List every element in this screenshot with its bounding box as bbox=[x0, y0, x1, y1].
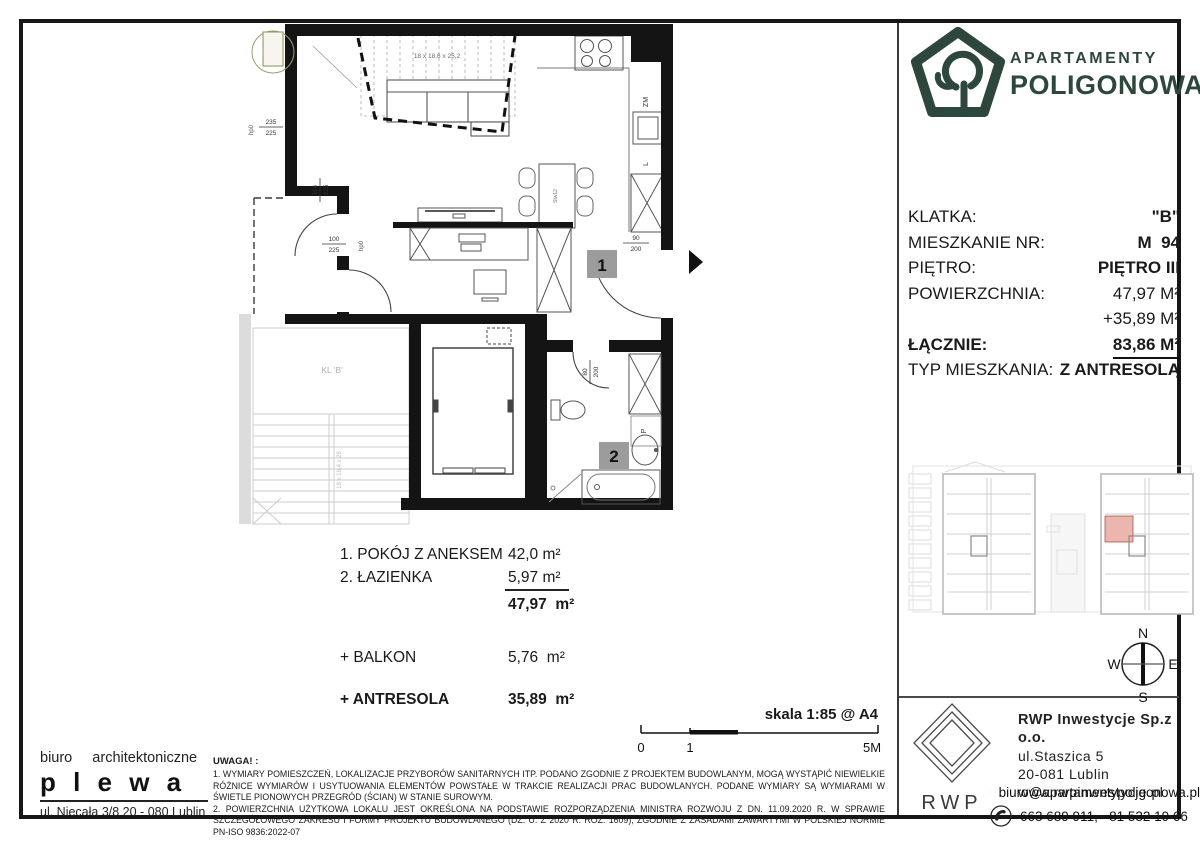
site-building-a bbox=[943, 474, 1035, 614]
floor-plan: KL 'B' 18 x 16,4 x 28 18 x 18,6 x 25,2 bbox=[237, 18, 707, 528]
developer-phones: 663 689 911, 81 532 19 66 bbox=[1020, 809, 1188, 824]
disclaimer: UWAGA! : 1. WYMIARY POMIESZCZEŃ, LOKALIZ… bbox=[213, 756, 885, 838]
site-plan-thumbnail bbox=[905, 460, 1197, 632]
email-row: biuro@apartamentypoligonowa.pl bbox=[990, 781, 1200, 803]
detail-label: ŁĄCZNIE: bbox=[908, 332, 987, 360]
tv-and-island bbox=[393, 208, 573, 312]
site-building-b bbox=[1101, 474, 1193, 614]
room-area: 5,97 m² bbox=[508, 566, 580, 589]
dishwasher-label: ZM bbox=[643, 97, 650, 107]
detail-label: PIĘTRO: bbox=[908, 255, 976, 281]
scale-label: skala 1:85 @ A4 bbox=[620, 706, 878, 723]
table-code-label: Stw12 bbox=[553, 189, 559, 203]
developer-company: RWP Inwestycje Sp.z o.o. bbox=[1018, 711, 1188, 747]
core-staircase bbox=[239, 314, 409, 524]
entrance-arrow-icon bbox=[689, 250, 703, 274]
detail-label: KLATKA: bbox=[908, 204, 977, 230]
core-stair-dimension: 18 x 16,4 x 28 bbox=[337, 450, 343, 488]
room-list-sum-line bbox=[505, 589, 569, 591]
detail-row-powierzchnia: POWIERZCHNIA: 47,97 M² bbox=[908, 281, 1180, 307]
detail-value: 47,97 M² bbox=[1113, 281, 1180, 307]
apartment-details: KLATKA: "B" MIESZKANIE NR: M 94 PIĘTRO: … bbox=[908, 204, 1180, 359]
dim-bath-door: 80 200 bbox=[582, 360, 600, 384]
disclaimer-title: UWAGA! : bbox=[213, 756, 885, 767]
type-value: Z ANTRESOLĄ bbox=[1060, 360, 1180, 380]
room-name: 2. ŁAZIENKA bbox=[340, 566, 508, 589]
site-center-building bbox=[1047, 514, 1085, 612]
rwp-logo-text: RWP bbox=[912, 792, 992, 815]
extra-area: 35,89 m² bbox=[508, 688, 580, 711]
detail-value: +35,89 M² bbox=[1103, 306, 1180, 332]
apartment-type-row: TYP MIESZKANIA: Z ANTRESOLĄ bbox=[908, 360, 1180, 380]
phone-row: 663 689 911, 81 532 19 66 bbox=[990, 805, 1200, 827]
envelope-icon bbox=[990, 781, 991, 803]
type-label: TYP MIESZKANIA: bbox=[908, 360, 1053, 380]
detail-row-klatka: KLATKA: "B" bbox=[908, 204, 1180, 230]
antresola-row: + ANTRESOLA 35,89 m² bbox=[340, 688, 580, 711]
understair-guide-line bbox=[313, 46, 357, 88]
room-area: 42,0 m² bbox=[508, 543, 580, 566]
room-row-2: 2. ŁAZIENKA 5,97 m² bbox=[340, 566, 580, 589]
sofa bbox=[387, 80, 509, 136]
detail-row-lacznie: ŁĄCZNIE: 83,86 M² bbox=[908, 332, 1180, 360]
compass-e: E bbox=[1168, 656, 1177, 672]
detail-label: MIESZKANIE NR: bbox=[908, 230, 1045, 256]
room-list-total: 47,97 m² bbox=[508, 596, 574, 614]
room-list: 1. POKÓJ Z ANEKSEM 42,0 m² 2. ŁAZIENKA 5… bbox=[340, 543, 580, 589]
detail-value: "B" bbox=[1152, 204, 1180, 230]
detail-row-mieszkanie: MIESZKANIE NR: M 94 bbox=[908, 230, 1180, 256]
scale-tick-5m: 5M bbox=[863, 740, 881, 755]
svg-text:100: 100 bbox=[329, 236, 340, 243]
rwp-diamond-logo-icon bbox=[912, 700, 992, 790]
architect-line1: biuro architektoniczne bbox=[40, 750, 212, 766]
dim-balcony-door-2: 100 225 bbox=[322, 236, 346, 254]
compass-n: N bbox=[1138, 625, 1148, 641]
dim-entry-door: 90 200 bbox=[623, 235, 649, 253]
detail-value: 83,86 M² bbox=[1113, 332, 1180, 360]
dim-window-left: 235 225 bbox=[259, 119, 283, 137]
elevator bbox=[433, 328, 513, 474]
balcony-outline bbox=[254, 198, 285, 314]
pentagon-tree-logo-icon bbox=[908, 24, 1008, 126]
scale-bar: 0 1 5M bbox=[620, 724, 882, 756]
apartment-card-sheet: APARTAMENTY POLIGONOWA KLATKA: "B" MIESZ… bbox=[0, 0, 1200, 849]
balcony-row: + BALKON 5,76 m² bbox=[340, 646, 580, 669]
compass-icon: N S W E bbox=[1103, 624, 1183, 704]
hp0-mark-1: hp0 bbox=[249, 124, 255, 135]
developer-street: ul.Staszica 5 bbox=[1018, 747, 1188, 765]
disclaimer-line1: 1. WYMIARY POMIESZCZEŃ, LOKALIZACJE PRZY… bbox=[213, 769, 885, 804]
extra-name: + ANTRESOLA bbox=[340, 688, 508, 711]
brand-wordmark: APARTAMENTY POLIGONOWA bbox=[1010, 50, 1185, 101]
core-staircase-label: KL 'B' bbox=[321, 365, 343, 375]
brand-line1: APARTAMENTY bbox=[1010, 50, 1185, 68]
room-row-1: 1. POKÓJ Z ANEKSEM 42,0 m² bbox=[340, 543, 580, 566]
washer-label: P bbox=[641, 428, 648, 433]
compass-s: S bbox=[1138, 689, 1147, 704]
architect-block: biuro architektoniczne p l e w a ul. Nie… bbox=[40, 750, 212, 819]
svg-text:114: 114 bbox=[312, 184, 319, 195]
hp0-mark-2: hp0 bbox=[359, 240, 365, 251]
architect-name: p l e w a bbox=[40, 767, 208, 802]
svg-text:225: 225 bbox=[266, 130, 277, 137]
architect-address: ul. Niecała 3/8 20 - 080 Lublin bbox=[40, 805, 212, 819]
extra-name: + BALKON bbox=[340, 646, 508, 669]
svg-text:235: 235 bbox=[266, 119, 277, 126]
svg-text:80: 80 bbox=[582, 368, 589, 376]
scale-tick-1: 1 bbox=[686, 740, 693, 755]
room-2-marker-label: 2 bbox=[609, 447, 618, 466]
detail-value: M 94 bbox=[1137, 230, 1180, 256]
compass-w: W bbox=[1107, 656, 1121, 672]
svg-text:200: 200 bbox=[593, 366, 600, 377]
brand-line2: POLIGONOWA bbox=[1010, 70, 1185, 101]
svg-text:225: 225 bbox=[323, 184, 330, 195]
phone-icon bbox=[990, 805, 1012, 827]
room-name: 1. POKÓJ Z ANEKSEM bbox=[340, 543, 508, 566]
svg-text:200: 200 bbox=[631, 246, 642, 253]
detail-value: PIĘTRO III bbox=[1098, 255, 1180, 281]
developer-email: biuro@apartamentypoligonowa.pl bbox=[999, 785, 1200, 800]
disclaimer-line2: 2. POWIERZCHNIA UŻYTKOWA LOKALU JEST OKR… bbox=[213, 804, 885, 839]
detail-row-antresola-area: +35,89 M² bbox=[908, 306, 1180, 332]
scale-tick-0: 0 bbox=[637, 740, 644, 755]
detail-row-pietro: PIĘTRO: PIĘTRO III bbox=[908, 255, 1180, 281]
extra-area: 5,76 m² bbox=[508, 646, 580, 669]
svg-text:225: 225 bbox=[329, 247, 340, 254]
room-1-marker-label: 1 bbox=[597, 256, 606, 275]
fridge-label: L bbox=[643, 162, 650, 166]
detail-label: POWIERZCHNIA: bbox=[908, 281, 1045, 307]
svg-text:90: 90 bbox=[632, 235, 640, 242]
mezzanine-stair-dimension: 18 x 18,6 x 25,2 bbox=[414, 53, 461, 60]
